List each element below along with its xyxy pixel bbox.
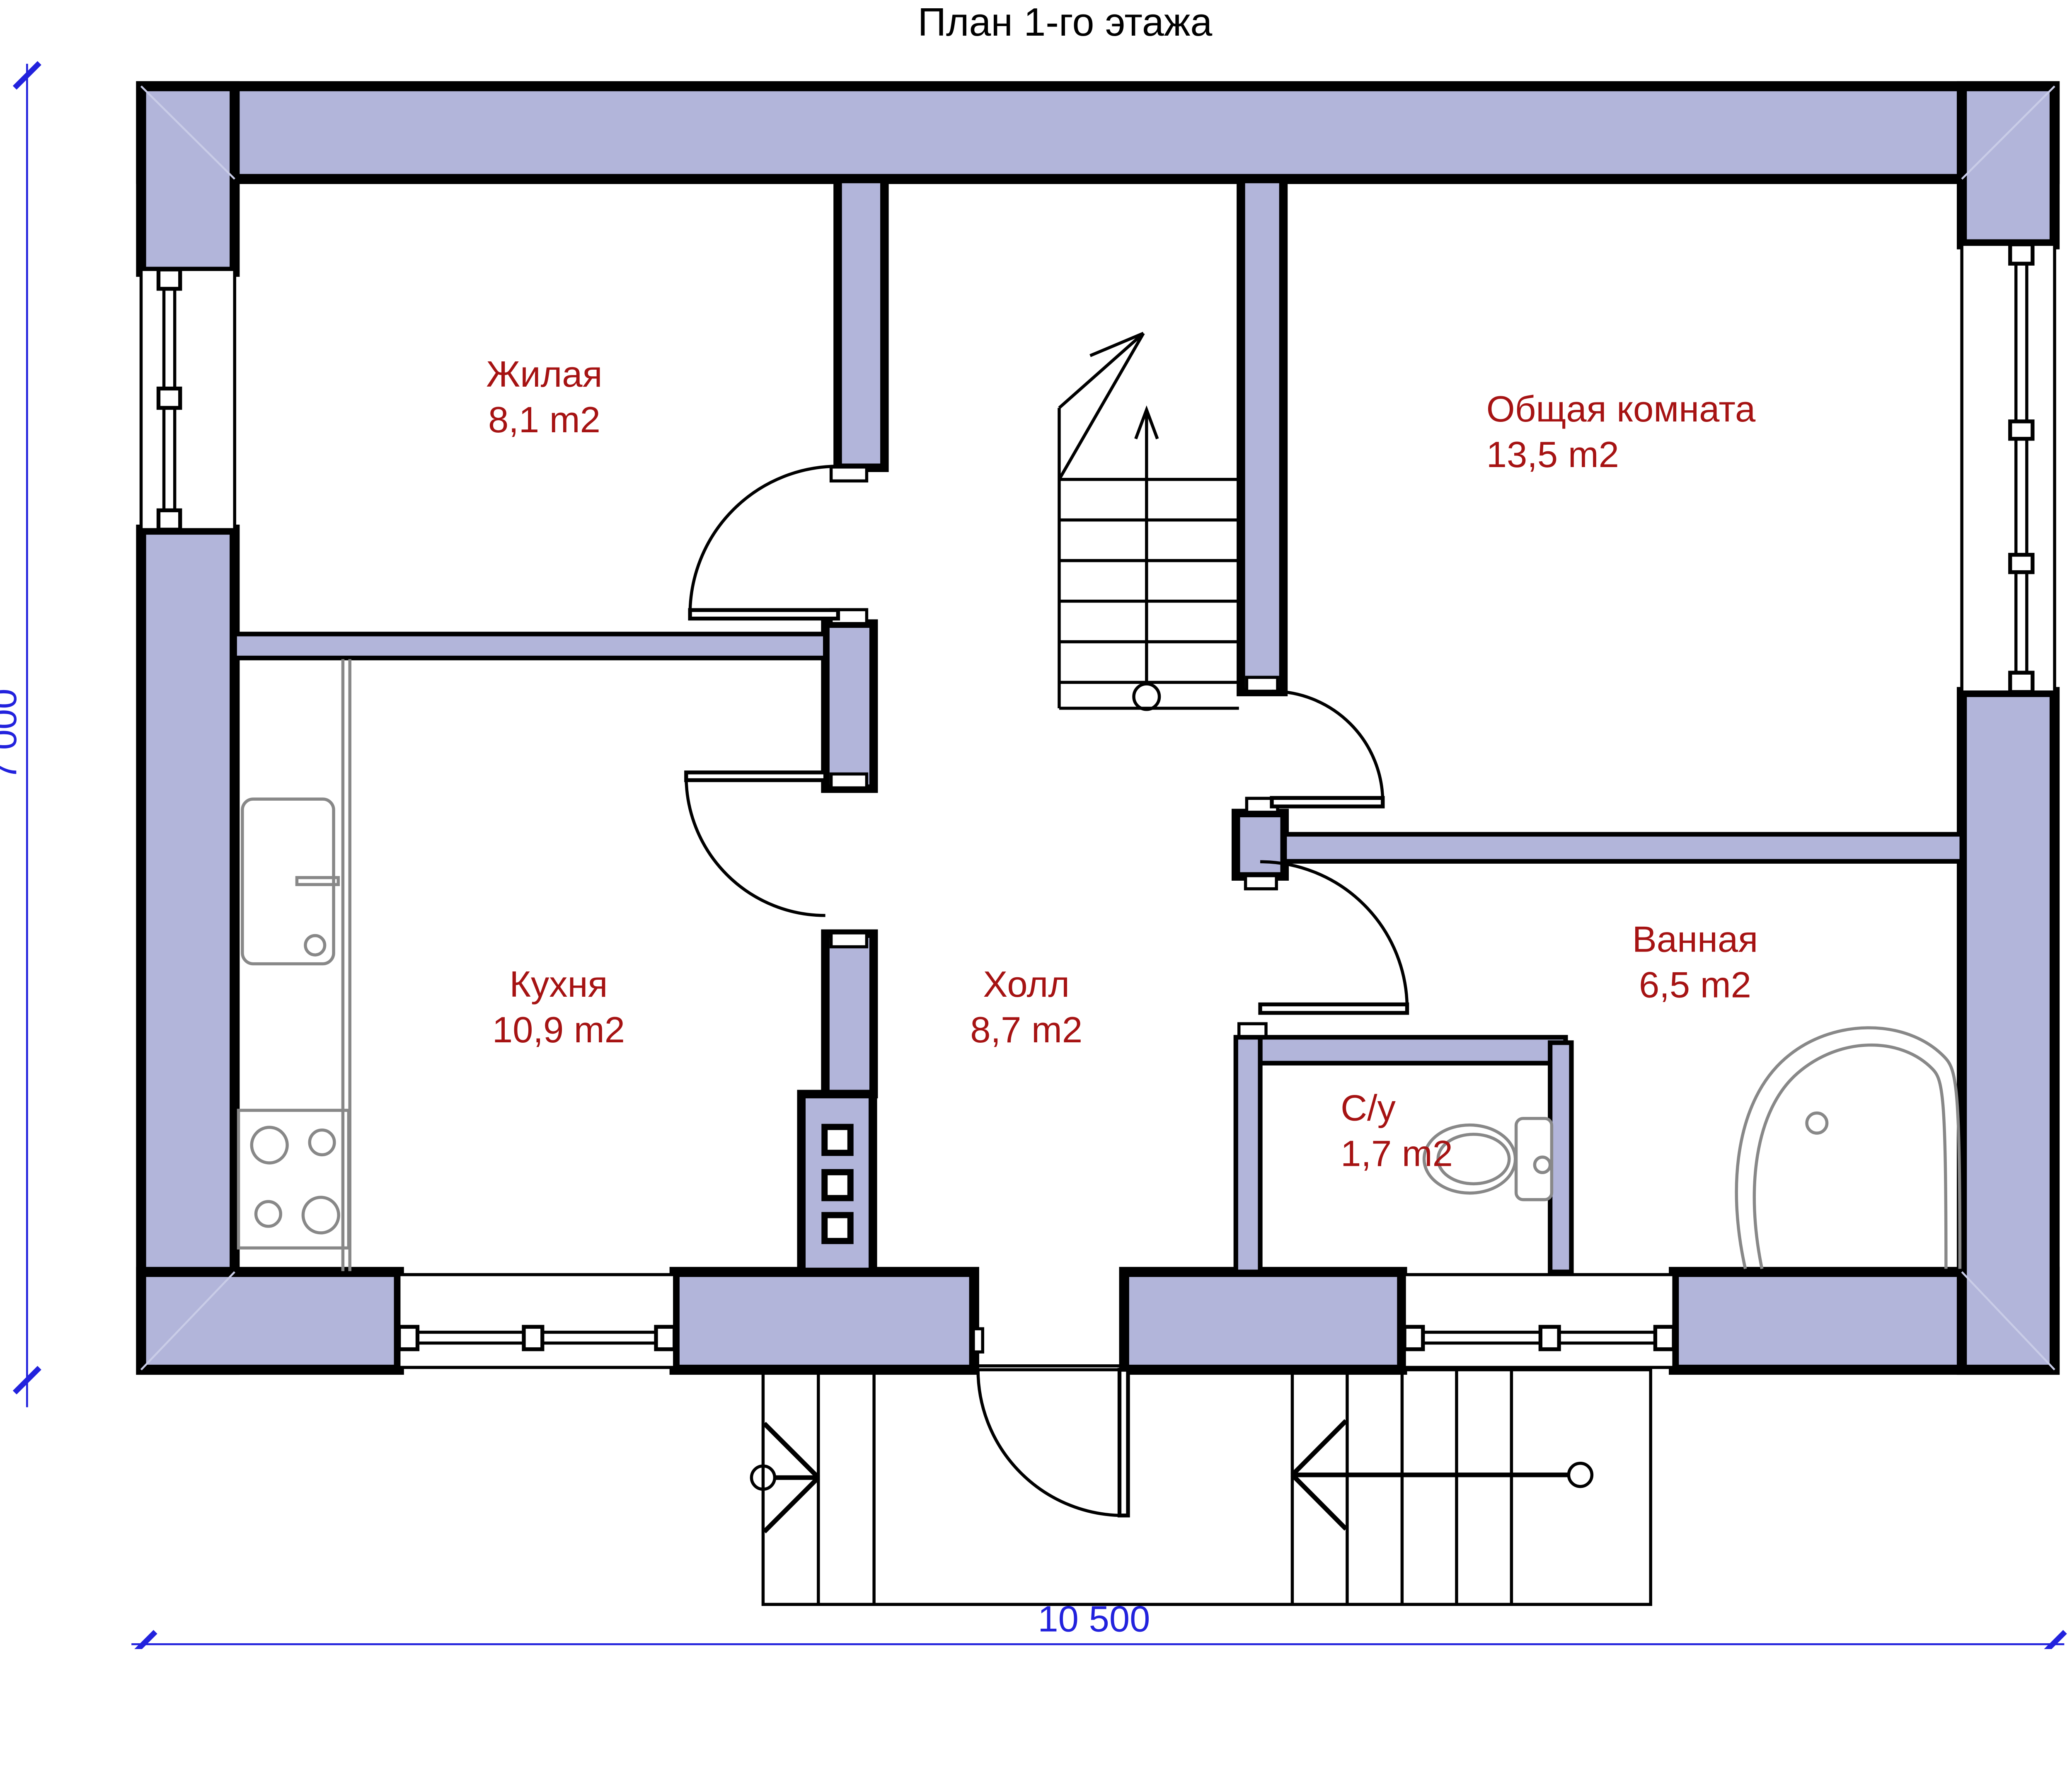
door-leaf (690, 610, 838, 619)
door-entrance (973, 1329, 1128, 1516)
door-swing-arc (690, 466, 838, 614)
door-leaf (1272, 798, 1383, 806)
room-label-su-name: С/у (1341, 1087, 1396, 1128)
door-jamb (1246, 876, 1277, 889)
staircase (1059, 333, 1239, 710)
bathtub-inner-rim (1754, 1045, 1946, 1269)
window-right-glazing (2016, 245, 2027, 692)
interior-walls (235, 179, 1962, 1272)
stove-burner (310, 1130, 334, 1155)
door-leaf (1260, 1005, 1407, 1013)
chimney-flue-1 (825, 1127, 850, 1153)
wall-bottom-center-left (675, 1272, 974, 1370)
stove-burner (303, 1197, 339, 1233)
door-swing-arc (1272, 691, 1383, 802)
stair-winder-lines (1059, 333, 1143, 480)
window-bathroom-mullion (1540, 1327, 1559, 1349)
window-bathroom-mullion (1655, 1327, 1674, 1349)
window-right (1962, 245, 2055, 692)
kitchen-stove (239, 1110, 349, 1248)
wall-top (141, 86, 2055, 179)
porch-steps-right (1292, 1370, 1511, 1604)
chimney-flue-2 (825, 1172, 850, 1198)
room-label-su-area: 1,7 m2 (1341, 1133, 1453, 1174)
door-swing-arc (1260, 862, 1407, 1008)
window-kitchen (399, 1275, 675, 1368)
wall-su-bathroom (1550, 1043, 1571, 1272)
door-leaf (686, 773, 825, 780)
sink-drain (305, 935, 325, 955)
wall-top-left-corner (141, 86, 235, 272)
wall-hall-commonroom (1241, 179, 1283, 692)
room-label-kholl-area: 8,7 m2 (970, 1009, 1082, 1050)
window-right-opening (1962, 245, 2055, 692)
bathtub-drain (1807, 1113, 1827, 1133)
door-swing-arc (686, 776, 825, 915)
sink-basin (242, 799, 334, 964)
room-label-vannaya-area: 6,5 m2 (1639, 964, 1751, 1005)
wall-zhilaya-kitchen (235, 634, 825, 658)
window-right-mullion (2010, 421, 2033, 439)
window-kitchen-opening (399, 1275, 675, 1368)
window-left-mullion (158, 269, 180, 289)
room-label-obshchaya-name: Общая комната (1486, 388, 1756, 429)
wall-su-left (1236, 1037, 1260, 1272)
stove-burner (252, 1127, 287, 1163)
wall-hall-kitchen-lower (825, 934, 874, 1094)
room-label-vannaya-name: Ванная (1632, 919, 1758, 960)
window-left (141, 269, 235, 530)
wall-bottom-left (141, 1272, 399, 1370)
porch (751, 1370, 1651, 1604)
page-title: План 1-го этажа (918, 0, 1213, 44)
wall-bath-junction-block (1236, 813, 1285, 877)
door-swing-arc (978, 1370, 1124, 1516)
door-jamb (973, 1329, 983, 1352)
door-leaf (1119, 1370, 1128, 1516)
room-label-kholl-name: Холл (983, 964, 1070, 1005)
window-left-opening (141, 269, 235, 530)
door-kitchen (686, 773, 867, 947)
dimension-tick (2041, 1632, 2065, 1649)
room-label-zhilaya-name: Жилая (486, 354, 602, 395)
floor-plan-page: План 1-го этажа (0, 0, 2072, 1649)
window-left-mullion (158, 510, 180, 530)
window-kitchen-mullion (656, 1327, 675, 1349)
window-bathroom-mullion (1404, 1327, 1423, 1349)
exterior-walls (141, 86, 2055, 1370)
window-right-mullion (2010, 673, 2033, 692)
door-jamb (1247, 677, 1278, 691)
kitchen-sink (242, 799, 338, 964)
dimension-height-label: 7 000 (0, 689, 24, 781)
sink-faucet (297, 878, 338, 885)
window-bathroom (1404, 1275, 1674, 1368)
wall-hall-zhilaya-upper (838, 179, 884, 468)
wall-bottom-center-right (1124, 1272, 1402, 1370)
door-jamb (831, 467, 867, 481)
window-right-mullion (2010, 245, 2033, 264)
porch-arrow-start-right (1569, 1463, 1592, 1487)
floor-plan-drawing: План 1-го этажа (0, 0, 2072, 1649)
wall-commonroom-bathroom (1285, 834, 1962, 861)
door-jamb (831, 933, 867, 947)
room-label-kukhnya-area: 10,9 m2 (492, 1009, 625, 1050)
wall-hall-kitchen-mid (825, 624, 874, 789)
door-jamb (1239, 1024, 1266, 1037)
dimension-bottom: 10 500 (131, 1598, 2065, 1649)
stove-burner (256, 1201, 281, 1226)
room-label-zhilaya-area: 8,1 m2 (488, 399, 600, 440)
dimension-left: 7 000 (0, 63, 39, 1407)
kitchen-fixtures (239, 659, 350, 1271)
wall-su-top (1260, 1037, 1566, 1063)
window-kitchen-mullion (399, 1327, 418, 1349)
door-jamb (831, 774, 867, 788)
window-left-mullion (158, 388, 180, 408)
window-bathroom-opening (1404, 1275, 1674, 1368)
window-kitchen-mullion (524, 1327, 542, 1349)
door-bathroom (1239, 862, 1407, 1037)
dimension-width-label: 10 500 (1038, 1598, 1150, 1640)
wall-left-lower (141, 530, 235, 1370)
stair-treads (1059, 480, 1239, 708)
porch-steps-left (818, 1370, 874, 1604)
room-label-kukhnya-name: Кухня (509, 964, 608, 1005)
dimension-tick (131, 1632, 155, 1649)
chimney-flue-3 (825, 1215, 850, 1241)
porch-outline (763, 1370, 1651, 1604)
bathtub (1736, 1028, 1960, 1269)
door-zhilaya (690, 466, 867, 624)
door-common-room (1247, 677, 1382, 812)
wall-right-lower (1962, 692, 2055, 1370)
room-label-obshchaya-area: 13,5 m2 (1486, 434, 1619, 475)
window-right-mullion (2010, 555, 2033, 572)
stair-direction-start (1134, 684, 1159, 710)
